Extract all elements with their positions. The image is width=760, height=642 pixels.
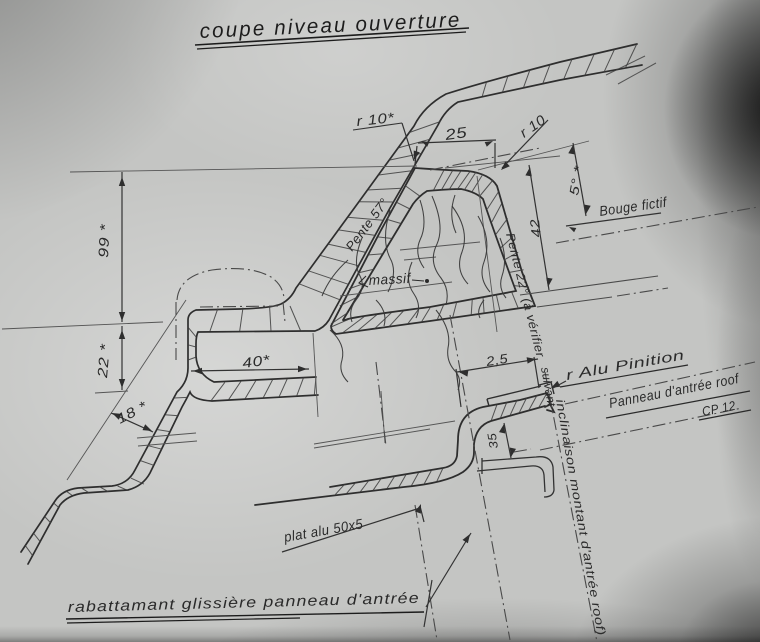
svg-text:plat alu 50x5: plat alu 50x5 <box>282 515 364 545</box>
svg-text:r Alu Pinition: r Alu Pinition <box>565 346 686 383</box>
svg-text:22 *: 22 * <box>94 343 113 380</box>
svg-text:99 *: 99 * <box>95 223 113 258</box>
svg-text:42: 42 <box>527 217 544 238</box>
svg-text:Pente 22° (à vérifier: Pente 22° (à vérifier <box>503 231 548 359</box>
svg-text:r 10*: r 10* <box>356 109 396 129</box>
svg-text:Bouge fictif: Bouge fictif <box>598 193 669 219</box>
svg-text:40*: 40* <box>241 351 271 371</box>
svg-text:massif: massif <box>368 270 412 288</box>
svg-text:coupe niveau ouverture: coupe niveau ouverture <box>199 9 462 43</box>
svg-text:2,5: 2,5 <box>484 351 509 369</box>
svg-text:35: 35 <box>485 432 501 450</box>
svg-text:inclinaison montant d'antrée r: inclinaison montant d'antrée roof) <box>553 398 608 637</box>
svg-text:25: 25 <box>443 124 469 144</box>
svg-text:5° *: 5° * <box>566 164 586 197</box>
svg-text:rabattamant glissière panneau: rabattamant glissière panneau d'antrée <box>68 590 420 616</box>
